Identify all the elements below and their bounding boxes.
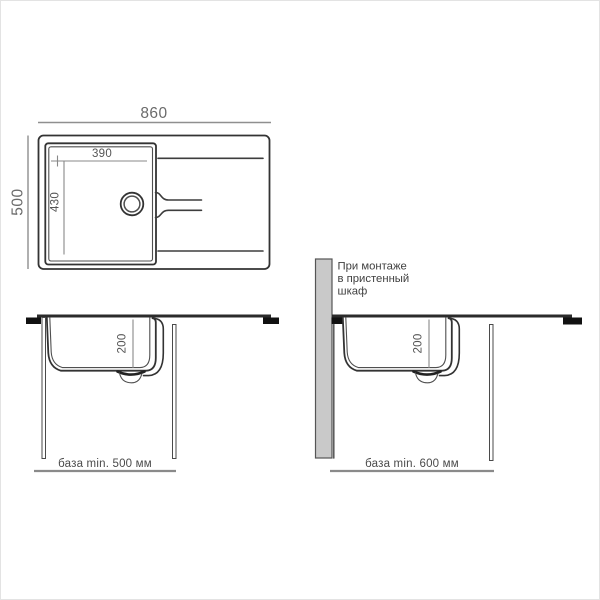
drain-flange — [414, 372, 441, 375]
top-view: 860 500 390 430 — [10, 105, 272, 269]
bowl-section-inner — [50, 318, 150, 368]
dim-label-overall-width: 860 — [140, 105, 167, 122]
overflow-channel-upper — [156, 193, 202, 201]
drawing-canvas: 860 500 390 430 — [1, 1, 599, 599]
wall-panel — [316, 259, 333, 458]
mounting-clamp-right — [563, 318, 582, 325]
dim-label-bowl-depth: 200 — [117, 333, 129, 353]
dim-label-bowl-depth: 200 — [413, 333, 425, 353]
cabinet-side-left — [42, 318, 46, 459]
note-line-1: При монтаже — [338, 261, 407, 273]
mounting-clamp-left — [332, 318, 344, 325]
sink-installation-drawing: 860 500 390 430 — [0, 0, 600, 600]
bowl-section-inner — [346, 318, 446, 368]
base-dim-label: база min. 500 мм — [58, 458, 152, 470]
cabinet-side-right — [173, 325, 177, 459]
bowl-section-outer — [343, 318, 452, 371]
note-line-2: в пристенный — [338, 273, 410, 285]
drain-flange — [118, 372, 145, 375]
dim-label-bowl-width: 390 — [92, 148, 112, 160]
cabinet-side-right — [490, 325, 494, 461]
bowl-section-outer — [47, 318, 156, 371]
section-view-standard: 200 база min. 500 мм — [26, 316, 279, 471]
mounting-clamp-left — [26, 318, 41, 325]
note-line-3: шкаф — [338, 286, 368, 298]
mounting-clamp-right — [263, 318, 279, 325]
base-dim-label: база min. 600 мм — [365, 458, 459, 470]
dim-label-overall-depth: 500 — [10, 188, 27, 215]
drain-inner-circle — [124, 196, 140, 212]
section-view-wall-cabinet: При монтаже в пристенный шкаф 200 база m… — [316, 259, 583, 471]
sink-outer-rim — [39, 136, 270, 270]
overflow-channel-lower — [156, 210, 202, 217]
dim-label-bowl-length: 430 — [50, 192, 62, 212]
